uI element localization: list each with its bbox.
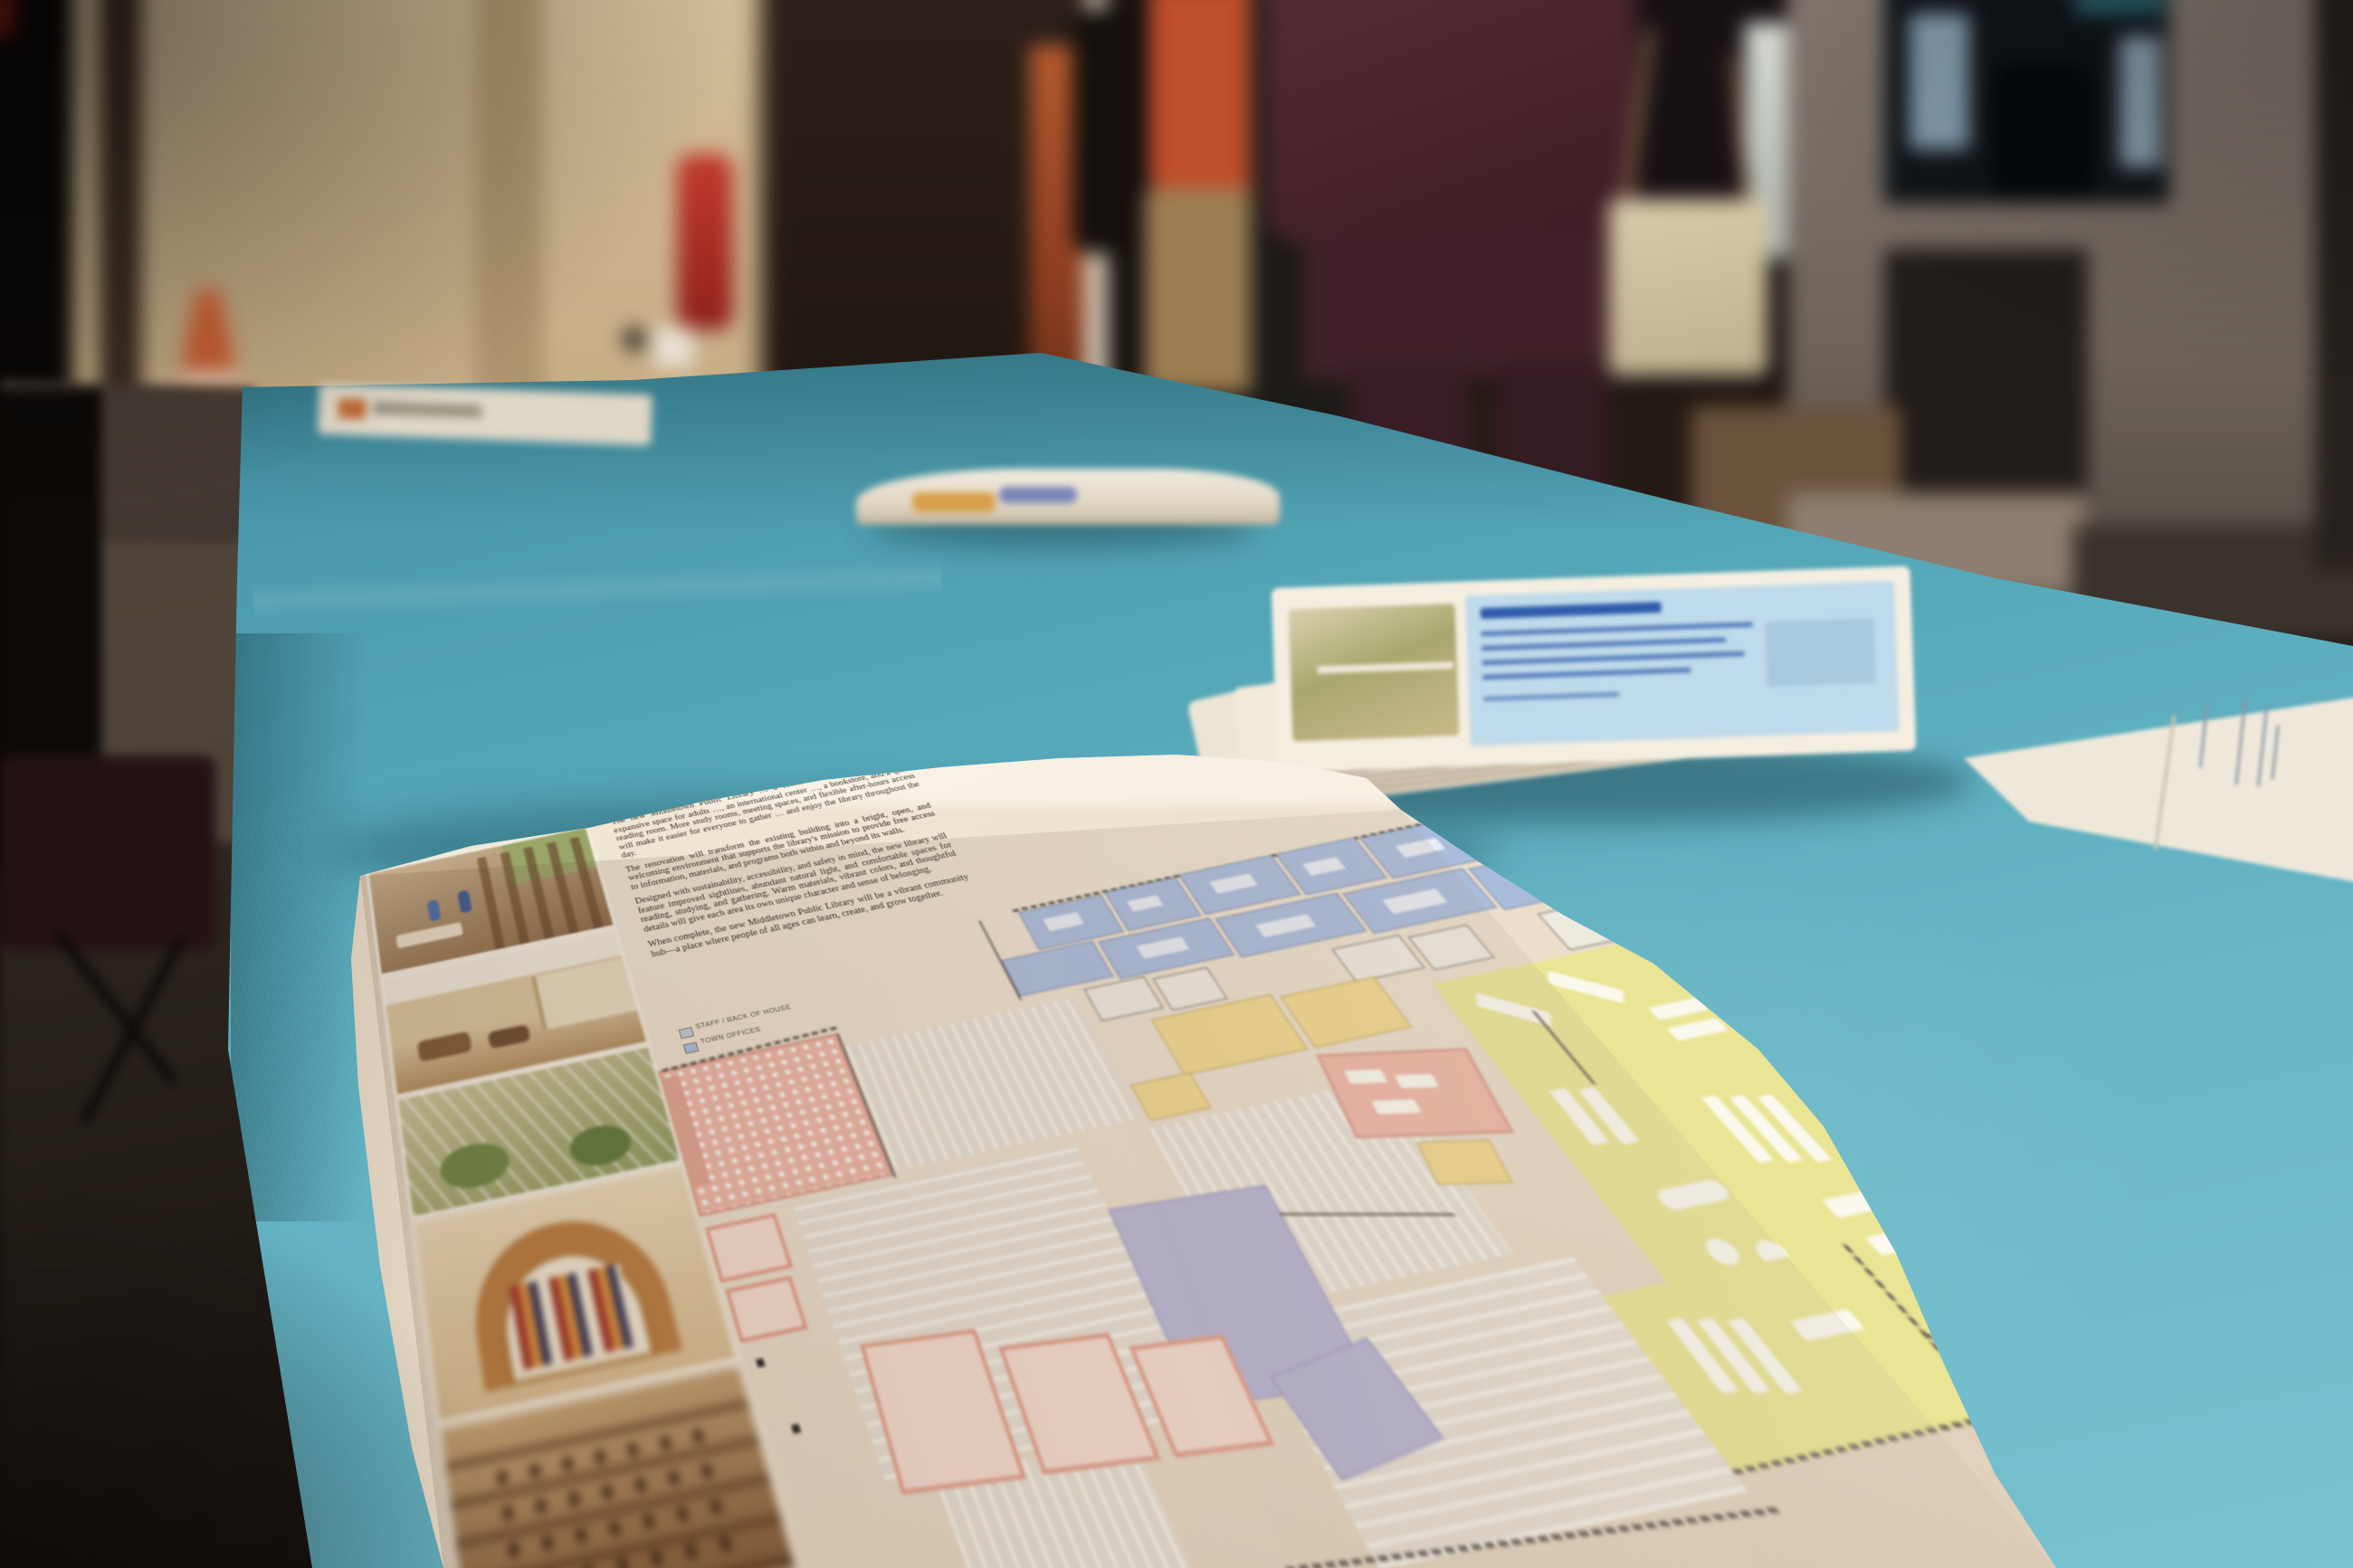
red-corner-object bbox=[0, 0, 14, 36]
small-room bbox=[1153, 967, 1228, 1011]
person-khaki-pants bbox=[1145, 188, 1258, 392]
small-room bbox=[1083, 976, 1163, 1022]
flyer-inset-photo bbox=[1765, 618, 1875, 687]
photo-scene: The new Middletown Public Library … a ce… bbox=[0, 0, 2353, 1568]
small-room bbox=[1331, 935, 1424, 983]
person-figure bbox=[457, 889, 472, 913]
mirror-teal-strip bbox=[2074, 0, 2165, 14]
packet-body bbox=[1955, 688, 2353, 896]
reading-table bbox=[395, 922, 462, 948]
mirror-window-reflection bbox=[1910, 14, 1969, 149]
folding-chair-back bbox=[0, 389, 101, 778]
column-marker bbox=[791, 1424, 801, 1434]
cloth-crease bbox=[252, 558, 941, 620]
booklet-photo-smudge bbox=[912, 492, 995, 512]
column-marker bbox=[756, 1358, 766, 1368]
flyer-text-line bbox=[1483, 692, 1619, 701]
flyer-text-line bbox=[1481, 638, 1726, 651]
furniture bbox=[488, 1024, 531, 1050]
folded-booklet bbox=[856, 452, 1280, 536]
mirror-window-reflection bbox=[2120, 36, 2161, 167]
flyer-text-line bbox=[1482, 651, 1745, 665]
cream-tote-bag bbox=[1609, 199, 1767, 375]
small-wall-sign bbox=[653, 328, 693, 367]
mirror-person-silhouette bbox=[1993, 63, 2094, 199]
meeting-room bbox=[705, 1213, 793, 1283]
person-orange-shirt bbox=[1149, 0, 1258, 190]
person-figure bbox=[427, 899, 442, 922]
folding-chair-seat bbox=[0, 755, 215, 950]
dark-furniture bbox=[1884, 249, 2088, 511]
flyer-photo-roofline bbox=[1318, 661, 1453, 673]
flyer-heading-bar bbox=[1481, 602, 1662, 619]
furniture bbox=[417, 1031, 472, 1062]
fire-extinguisher bbox=[677, 154, 733, 330]
person-maroon-sweater bbox=[1265, 0, 1641, 244]
bookstore-room bbox=[1130, 1072, 1212, 1121]
plan-wall bbox=[1279, 1212, 1455, 1215]
paper-photo-smudge bbox=[338, 398, 367, 419]
top-flyer bbox=[1272, 565, 1917, 773]
right-edge-shadow bbox=[2315, 0, 2353, 570]
booklet-text-smudge bbox=[999, 487, 1077, 503]
door-knob bbox=[623, 328, 646, 351]
flyer-text-line bbox=[1481, 622, 1753, 636]
flyer-blue-panel bbox=[1465, 581, 1900, 746]
flyer-text-line bbox=[1482, 668, 1691, 679]
meeting-room bbox=[725, 1276, 808, 1344]
right-edge-packet bbox=[1955, 688, 2353, 896]
book-stacks bbox=[846, 997, 1144, 1170]
person-maroon-hip bbox=[1303, 235, 1629, 380]
flyer-building-photo bbox=[1289, 603, 1460, 741]
window-wall bbox=[531, 956, 645, 1031]
paper-text-smudge bbox=[373, 402, 481, 418]
